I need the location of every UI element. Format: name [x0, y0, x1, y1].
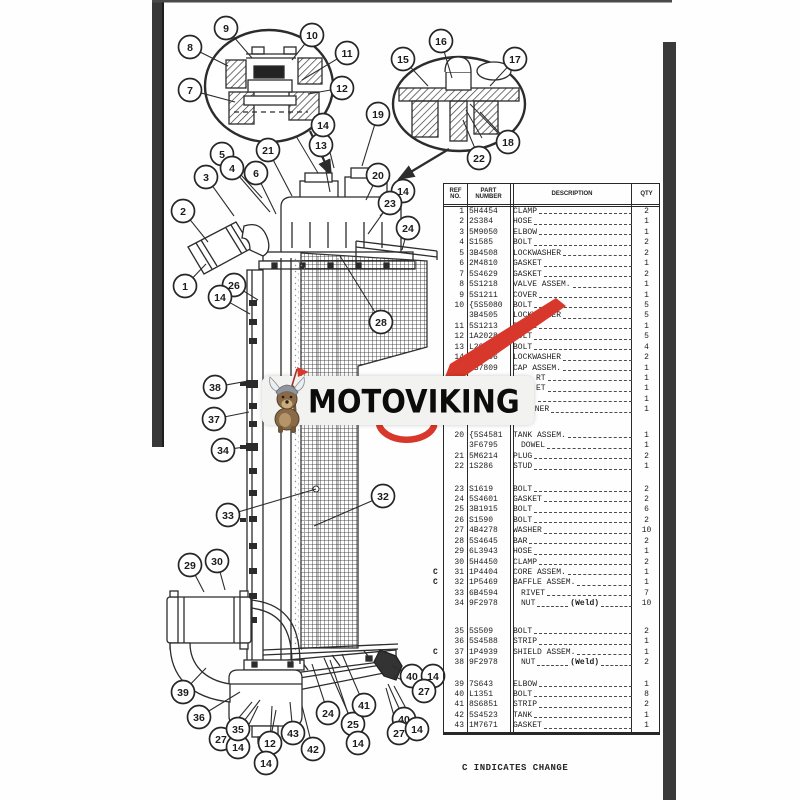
cell-ref: 4 [444, 238, 467, 248]
header-desc: DESCRIPTION [510, 191, 634, 198]
callout-14: 14 [347, 732, 370, 755]
cell-desc: COVER [510, 291, 634, 301]
callout-36: 36 [188, 706, 211, 729]
cell-ref [444, 311, 467, 321]
callout-37: 37 [203, 408, 226, 431]
cell-ref: 21 [444, 452, 467, 462]
cell-part: {5S4581 [467, 431, 510, 441]
svg-text:14: 14 [317, 120, 329, 132]
cell-qty: 2 [634, 270, 659, 280]
cell-ref: 32 [444, 578, 467, 588]
svg-text:25: 25 [347, 719, 359, 731]
callout-24: 24 [397, 217, 420, 240]
leader-line [225, 412, 249, 417]
table-row: 2S7809CAP ASSEM.1 [444, 364, 659, 374]
cell-desc: BOLT [510, 485, 634, 495]
cell-desc: GASKET [510, 495, 634, 505]
cell-desc: GASKET [510, 721, 634, 731]
callout-32: 32 [372, 485, 395, 508]
cell-desc: ELBOW [510, 680, 634, 690]
callout-34: 34 [212, 439, 235, 462]
cell-ref: 7 [444, 270, 467, 280]
cell-ref: 2 [444, 217, 467, 227]
callout-6: 6 [245, 162, 268, 185]
svg-text:41: 41 [358, 700, 370, 712]
svg-text:9: 9 [223, 23, 229, 35]
cell-part: L204 [467, 343, 510, 353]
table-row: 4S1585BOLT2 [444, 238, 659, 248]
cell-qty: 1 [634, 395, 659, 405]
header-qty: QTY [634, 191, 659, 198]
cell-desc: BOLT [510, 690, 634, 700]
table-row: 15H4454CLAMP2 [444, 207, 659, 217]
cell-part: 5S1213 [467, 322, 510, 332]
table-row: 75S4629GASKET2 [444, 270, 659, 280]
callout-22: 22 [468, 147, 491, 170]
cell-ref: 1 [444, 207, 467, 217]
svg-text:6: 6 [253, 168, 259, 180]
cell-ref: 10 [444, 301, 467, 311]
parts-table-header: REF NO. PART NUMBER DESCRIPTION QTY [444, 184, 659, 207]
callout-14: 14 [209, 286, 232, 309]
core-and-frame [247, 241, 437, 710]
callout-11: 11 [336, 42, 359, 65]
table-row: 143B4506LOCKWASHER2 [444, 353, 659, 363]
callout-15: 15 [392, 48, 415, 71]
cell-qty: 1 [634, 711, 659, 721]
cell-part: 5S1211 [467, 291, 510, 301]
callout-39: 39 [172, 681, 195, 704]
svg-text:40: 40 [406, 671, 418, 683]
svg-text:15: 15 [397, 54, 409, 66]
cell-qty: 2 [634, 558, 659, 568]
svg-text:36: 36 [193, 712, 205, 724]
svg-text:2: 2 [180, 206, 186, 218]
cell-part: 5S1218 [467, 280, 510, 290]
table-row: 115S1213PLATE1 [444, 322, 659, 332]
cell-ref: 34 [444, 599, 467, 609]
callout-4: 4 [221, 157, 244, 180]
cell-ref: 41 [444, 700, 467, 710]
cell-qty: 1 [634, 547, 659, 557]
cell-ref: 29 [444, 547, 467, 557]
cell-qty: 7 [634, 589, 659, 599]
cell-desc: BOLT [510, 332, 634, 342]
cell-desc: BOLT [510, 301, 634, 311]
svg-text:23: 23 [384, 198, 396, 210]
cell-ref: 9 [444, 291, 467, 301]
cell-part: L1351 [467, 690, 510, 700]
cell-desc: LOCKWASHER [510, 249, 634, 259]
cell-desc: TANK [510, 711, 634, 721]
cell-ref: 28 [444, 537, 467, 547]
table-row: 365S4588STRIP1 [444, 637, 659, 647]
cell-qty: 1 [634, 462, 659, 472]
callout-1: 1 [174, 275, 197, 298]
cell-qty: 2 [634, 238, 659, 248]
cell-desc: HOSE [510, 217, 634, 227]
cell-ref: 6 [444, 259, 467, 269]
leader-line [190, 220, 208, 242]
callout-17: 17 [504, 48, 527, 71]
cell-part: 5S4629 [467, 270, 510, 280]
callout-27: 27 [413, 680, 436, 703]
cell-ref: 31 [444, 568, 467, 578]
svg-text:4: 4 [229, 163, 235, 175]
svg-text:28: 28 [375, 317, 387, 329]
cell-desc: PLATE [510, 322, 634, 332]
cell-qty: 1 [634, 637, 659, 647]
cell-part: 9F2978 [467, 599, 510, 609]
table-row: 245S4601GASKET2 [444, 495, 659, 505]
cell-part: 2S7809 [467, 364, 510, 374]
callout-41: 41 [353, 694, 376, 717]
callout-19: 19 [367, 103, 390, 126]
cell-qty: 1 [634, 680, 659, 690]
table-row: 53B4508LOCKWASHER2 [444, 249, 659, 259]
cell-ref: 35 [444, 627, 467, 637]
cell-desc: WASHER [510, 526, 634, 536]
cell-qty: 1 [634, 384, 659, 394]
cell-qty: 2 [634, 249, 659, 259]
svg-text:3: 3 [203, 172, 209, 184]
cell-ref: 30 [444, 558, 467, 568]
change-flag: C [433, 568, 438, 579]
cell-part: 5M6214 [467, 452, 510, 462]
cell-ref: 39 [444, 680, 467, 690]
cell-part: 1P4404 [467, 568, 510, 578]
svg-text:14: 14 [352, 738, 364, 750]
cell-desc: SHIELD ASSEM. [510, 648, 634, 658]
svg-text:12: 12 [336, 83, 348, 95]
svg-text:10: 10 [306, 30, 318, 42]
cell-desc: NUT(Weld) [510, 658, 634, 668]
parts-table: REF NO. PART NUMBER DESCRIPTION QTY 15H4… [443, 183, 660, 735]
callout-12: 12 [259, 732, 282, 755]
table-row: 215M6214PLUG2 [444, 452, 659, 462]
svg-text:8: 8 [187, 42, 193, 54]
cell-qty: 5 [634, 332, 659, 342]
table-row: 431M7671GASKET1 [444, 721, 659, 731]
cell-qty: 2 [634, 353, 659, 363]
cell-part: 2S384 [467, 217, 510, 227]
cell-qty: 10 [634, 526, 659, 536]
table-row: 397S643ELBOW1 [444, 680, 659, 690]
cell-desc: LOCKWASHER [510, 311, 634, 321]
cell-qty: 1 [634, 364, 659, 374]
table-row: 296L3943HOSE1 [444, 547, 659, 557]
cell-desc: BOLT [510, 516, 634, 526]
cell-qty: 2 [634, 658, 659, 668]
svg-text:12: 12 [264, 738, 276, 750]
table-row: 349F2978NUT(Weld)10 [444, 599, 659, 609]
cell-desc: RIVET [510, 589, 634, 599]
cell-ref [444, 364, 467, 374]
svg-text:34: 34 [217, 445, 229, 457]
cell-ref [444, 441, 467, 451]
table-row: 85S1218VALVE ASSEM.1 [444, 280, 659, 290]
cell-desc: CAP ASSEM. [510, 364, 634, 374]
cell-qty: 1 [634, 217, 659, 227]
leader-line [220, 572, 225, 590]
cell-desc: CLAMP [510, 207, 634, 217]
callout-21: 21 [257, 139, 280, 162]
cell-desc: BAFFLE ASSEM. [510, 578, 634, 588]
cell-qty: 1 [634, 291, 659, 301]
cell-part: 5S509 [467, 627, 510, 637]
callout-12: 12 [331, 77, 354, 100]
watermark-text: MOTOVIKING [308, 383, 520, 420]
cell-qty: 1 [634, 721, 659, 731]
cell-qty: 1 [634, 322, 659, 332]
cell-desc: GASKET [510, 259, 634, 269]
cell-qty: 2 [634, 207, 659, 217]
leader-line [273, 160, 292, 196]
callout-7: 7 [179, 79, 202, 102]
callout-24: 24 [317, 702, 340, 725]
table-row: C321P5469BAFFLE ASSEM.1 [444, 578, 659, 588]
table-row: 285S4645BAR2 [444, 537, 659, 547]
svg-text:17: 17 [509, 54, 521, 66]
cell-ref: 42 [444, 711, 467, 721]
cell-ref: 27 [444, 526, 467, 536]
table-row: 22S384HOSE1 [444, 217, 659, 227]
cell-part: 5S4645 [467, 537, 510, 547]
cell-ref: 13 [444, 343, 467, 353]
table-row: 336B4594RIVET7 [444, 589, 659, 599]
callout-20: 20 [367, 164, 390, 187]
callout-42: 42 [302, 738, 325, 761]
cell-part: 1S286 [467, 462, 510, 472]
table-row: 26S1590BOLT2 [444, 516, 659, 526]
cell-part: {5S5080 [467, 301, 510, 311]
cell-qty: 1 [634, 228, 659, 238]
cell-qty: 5 [634, 301, 659, 311]
cell-qty: 1 [634, 441, 659, 451]
svg-text:11: 11 [341, 48, 352, 60]
callout-8: 8 [179, 36, 202, 59]
table-row: 35M9050ELBOW1 [444, 228, 659, 238]
change-footnote: C INDICATES CHANGE [462, 763, 568, 773]
cell-desc: NUT(Weld) [510, 599, 634, 609]
cell-part: S1590 [467, 516, 510, 526]
cell-part: 1P5469 [467, 578, 510, 588]
watermark-banner: MOTOVIKING [262, 376, 534, 425]
cell-ref: 26 [444, 516, 467, 526]
cell-qty: 8 [634, 690, 659, 700]
svg-text:42: 42 [307, 744, 319, 756]
svg-text:19: 19 [372, 109, 384, 121]
cell-qty: 2 [634, 452, 659, 462]
cell-part: 3B4508 [467, 249, 510, 259]
svg-text:7: 7 [187, 85, 193, 97]
cell-desc: LOCKWASHER [510, 353, 634, 363]
callout-3: 3 [195, 166, 218, 189]
table-row: 305H4450CLAMP2 [444, 558, 659, 568]
cell-desc: PLUG [510, 452, 634, 462]
cell-ref: 23 [444, 485, 467, 495]
callout-14: 14 [255, 752, 278, 775]
cell-part: 6B4594 [467, 589, 510, 599]
leader-line [402, 239, 405, 250]
cell-qty: 2 [634, 537, 659, 547]
cell-ref: 20 [444, 431, 467, 441]
cell-ref: 36 [444, 637, 467, 647]
svg-text:39: 39 [177, 687, 189, 699]
cell-ref: 24 [444, 495, 467, 505]
cell-part: 9F2978 [467, 658, 510, 668]
cell-qty: 10 [634, 599, 659, 609]
cell-part: 1M7671 [467, 721, 510, 731]
svg-text:24: 24 [402, 223, 414, 235]
svg-text:32: 32 [377, 491, 389, 503]
svg-text:20: 20 [372, 170, 384, 182]
cell-qty: 2 [634, 485, 659, 495]
svg-text:1: 1 [182, 281, 188, 293]
table-row: 23S1619BOLT2 [444, 485, 659, 495]
cell-part: 5H4450 [467, 558, 510, 568]
cell-ref: 3 [444, 228, 467, 238]
cell-part: 3B4506 [467, 353, 510, 363]
table-row: 253B1915BOLT6 [444, 505, 659, 515]
leader-line [261, 183, 276, 214]
parts-table-body: 15H4454CLAMP222S384HOSE135M9050ELBOW14S1… [444, 207, 659, 732]
header-part: PART NUMBER [467, 188, 510, 201]
svg-text:43: 43 [287, 728, 299, 740]
svg-text:22: 22 [473, 153, 485, 165]
cell-part: 3B1915 [467, 505, 510, 515]
table-row: 355S509BOLT2 [444, 627, 659, 637]
cell-ref: 5 [444, 249, 467, 259]
top-tank [259, 168, 415, 269]
leader-line [213, 186, 234, 216]
cell-ref: 8 [444, 280, 467, 290]
cell-part: 3F6795 [467, 441, 510, 451]
svg-text:35: 35 [232, 724, 244, 736]
callout-18: 18 [497, 131, 520, 154]
cell-desc: BOLT [510, 627, 634, 637]
cell-qty: 1 [634, 374, 659, 384]
cell-part: 5S4523 [467, 711, 510, 721]
callout-23: 23 [379, 192, 402, 215]
svg-text:14: 14 [214, 292, 226, 304]
cell-qty: 2 [634, 516, 659, 526]
leader-line [195, 575, 204, 592]
cell-qty: 2 [634, 627, 659, 637]
viking-dog-mascot [264, 363, 310, 433]
cell-desc: BAR [510, 537, 634, 547]
callout-29: 29 [179, 554, 202, 577]
svg-text:33: 33 [222, 510, 234, 522]
cell-ref: 22 [444, 462, 467, 472]
cell-part: 7S643 [467, 680, 510, 690]
table-row: 10{5S5080BOLT5 [444, 301, 659, 311]
cell-part: S1585 [467, 238, 510, 248]
cell-qty: 1 [634, 280, 659, 290]
svg-text:13: 13 [315, 140, 327, 152]
cell-ref: 38 [444, 658, 467, 668]
table-row: C311P4404CORE ASSEM.1 [444, 568, 659, 578]
cell-qty: 2 [634, 495, 659, 505]
table-row: 3B4505LOCKWASHER5 [444, 311, 659, 321]
table-row: 274B4278WASHER10 [444, 526, 659, 536]
cell-qty: 5 [634, 311, 659, 321]
table-row: 20{5S4581TANK ASSEM.1 [444, 431, 659, 441]
cell-desc: ELBOW [510, 228, 634, 238]
callout-28: 28 [370, 311, 393, 334]
cell-qty: 1 [634, 578, 659, 588]
table-row: 418S6851STRIP2 [444, 700, 659, 710]
cell-qty: 4 [634, 343, 659, 353]
svg-text:18: 18 [502, 137, 514, 149]
svg-text:29: 29 [184, 560, 196, 572]
cell-desc: BOLT [510, 238, 634, 248]
svg-text:38: 38 [209, 382, 221, 394]
cell-qty: 1 [634, 648, 659, 658]
cell-ref: 14 [444, 353, 467, 363]
table-row: 95S1211COVER1 [444, 291, 659, 301]
callout-9: 9 [215, 17, 238, 40]
cell-desc: BOLT [510, 505, 634, 515]
cell-ref: 33 [444, 589, 467, 599]
change-flag: C [433, 578, 438, 589]
cell-qty: 1 [634, 568, 659, 578]
svg-text:24: 24 [322, 708, 334, 720]
cell-desc: STRIP [510, 637, 634, 647]
cell-ref: 37 [444, 648, 467, 658]
callout-2: 2 [172, 200, 195, 223]
svg-text:27: 27 [393, 728, 405, 740]
header-ref: REF NO. [444, 188, 467, 201]
svg-text:37: 37 [208, 414, 220, 426]
table-row: 3F6795DOWEL1 [444, 441, 659, 451]
callout-43: 43 [282, 722, 305, 745]
cell-desc: STRIP [510, 700, 634, 710]
cell-qty: 1 [634, 405, 659, 415]
table-row: 425S4523TANK1 [444, 711, 659, 721]
table-row: 221S286STUD1 [444, 462, 659, 472]
callout-35: 35 [227, 718, 250, 741]
svg-text:14: 14 [232, 742, 244, 754]
inlet-elbow [188, 222, 269, 274]
svg-text:27: 27 [418, 686, 430, 698]
table-row: 13L204BOLT4 [444, 343, 659, 353]
callout-30: 30 [206, 550, 229, 573]
cell-desc: TANK ASSEM. [510, 431, 634, 441]
cell-ref: 25 [444, 505, 467, 515]
svg-text:21: 21 [262, 145, 274, 157]
cell-part: 1A2028 [467, 332, 510, 342]
leader-line [362, 125, 375, 166]
svg-text:14: 14 [411, 724, 423, 736]
cell-desc: DOWEL [510, 441, 634, 451]
catalog-page: 7891011121516171822195436211314212014232… [0, 0, 800, 800]
cell-part: 3B4505 [467, 311, 510, 321]
cell-ref: 40 [444, 690, 467, 700]
leader-line [388, 684, 399, 709]
cell-qty: 1 [634, 431, 659, 441]
cell-qty: 6 [634, 505, 659, 515]
cell-qty: 1 [634, 259, 659, 269]
callout-14: 14 [312, 114, 335, 137]
callout-33: 33 [217, 504, 240, 527]
cell-part: 2M4810 [467, 259, 510, 269]
table-row: 40L1351BOLT8 [444, 690, 659, 700]
cell-desc: CLAMP [510, 558, 634, 568]
cell-desc: HOSE [510, 547, 634, 557]
svg-text:30: 30 [211, 556, 223, 568]
callout-10: 10 [301, 24, 324, 47]
